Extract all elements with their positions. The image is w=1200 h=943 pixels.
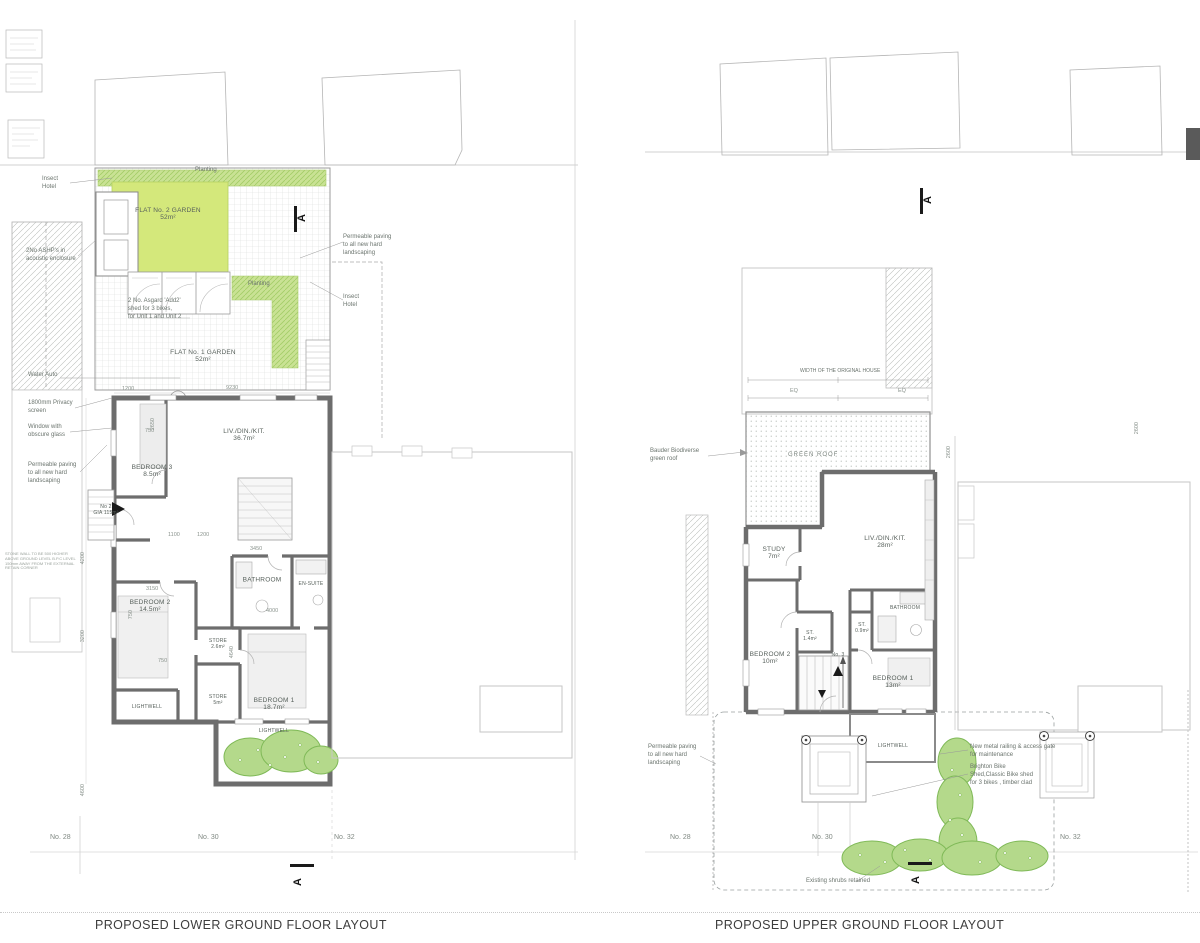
neighbour-32-left xyxy=(332,446,572,758)
bauder-note: Bauder Biodiverse green roof xyxy=(650,448,699,464)
neighbour-28-wall-right xyxy=(686,515,708,715)
permeable-right-note: Permeable paving to all new hard landsca… xyxy=(343,234,401,257)
lightwell-right-label: LIGHTWELL xyxy=(878,743,908,749)
liv-label-left: LIV./DIN./KIT. 36.7m² xyxy=(223,428,265,442)
privacy-note: 1800mm Privacy screen xyxy=(28,400,73,416)
section-letter-bottom-right: A xyxy=(910,876,922,884)
water-note: Water Auto xyxy=(28,372,57,380)
dim: 1100 xyxy=(168,532,180,538)
dim: 750 xyxy=(158,658,167,664)
st-hall-label: ST. 1.4m² xyxy=(803,630,817,642)
dim: 2600 xyxy=(1134,422,1140,434)
dim: 2600 xyxy=(946,446,952,458)
study-label: STUDY 7m² xyxy=(762,546,785,560)
bedroom1-label-right: BEDROOM 1 13m² xyxy=(873,675,914,689)
permeable-note-right: Permeable paving to all new hard landsca… xyxy=(648,744,696,767)
eq-right-label: EQ xyxy=(898,388,906,394)
bedroom2-label-left: BEDROOM 2 14.5m² xyxy=(130,599,171,613)
dim: 4640 xyxy=(229,646,235,658)
planting-top-label: Planting xyxy=(195,167,217,175)
store-large-label: STORE 5m² xyxy=(209,694,227,706)
ensuite-label: EN-SUITE xyxy=(299,581,324,587)
insect-left-note: Insect Hotel xyxy=(42,176,58,192)
section-letter-top-left: A xyxy=(296,214,308,222)
width-house-label: WIDTH OF THE ORIGINAL HOUSE xyxy=(800,368,880,375)
house-no-30-right: No. 30 xyxy=(812,834,833,841)
right-plan-title: PROPOSED UPPER GROUND FLOOR LAYOUT xyxy=(715,918,1004,932)
green-roof-label: GREEN ROOF xyxy=(788,452,838,460)
bedroom3-label: BEDROOM 3 8.5m² xyxy=(132,464,173,478)
lightwell-bottom-label: LIGHTWELL xyxy=(259,728,289,734)
house-no-28-right: No. 28 xyxy=(670,834,691,841)
stone-wall-note: STONE WALL TO BE 500 HIGHER ABOVE GROUND… xyxy=(5,552,85,571)
bathroom-label-left: BATHROOM xyxy=(243,577,282,584)
permeable-left-note: Permeable paving to all new hard landsca… xyxy=(28,462,76,485)
plan-linework xyxy=(0,0,1200,943)
drawing-canvas: Planting FLAT No. 2 GARDEN 52m² Permeabl… xyxy=(0,0,1200,943)
house-no-32-right: No. 32 xyxy=(1060,834,1081,841)
ashp-note: 2No ASHP's in acoustic enclosure xyxy=(26,248,76,264)
bedroom1-label-left: BEDROOM 1 18.7m² xyxy=(254,697,295,711)
garden-stair xyxy=(306,340,330,390)
dim: 4000 xyxy=(266,608,278,614)
planting-mid-label: Planting xyxy=(248,281,270,289)
flat1-garden-label: FLAT No. 1 GARDEN 52m² xyxy=(170,349,236,363)
dim: 9230 xyxy=(226,385,238,391)
section-letter-bottom-left: A xyxy=(292,878,304,886)
section-line-bottom-right xyxy=(908,862,932,865)
dark-block xyxy=(1186,128,1200,160)
st-small-label: ST. 0.9m² xyxy=(855,622,869,634)
bike-shed-note-right: Brighton Bike Shed,Classic Bike shed for… xyxy=(970,764,1060,787)
dim: 750 xyxy=(128,610,134,619)
liv-label-right: LIV./DIN./KIT. 28m² xyxy=(864,535,906,549)
eq-left-label: EQ xyxy=(790,388,798,394)
bedroom2-label-right: BEDROOM 2 10m² xyxy=(750,651,791,665)
railing-note: New metal railing & access gate for main… xyxy=(970,744,1065,760)
unit2-label: No 2 GIA 115m² xyxy=(93,504,118,516)
dim: 4600 xyxy=(80,784,86,796)
house-no-28-left: No. 28 xyxy=(50,834,71,841)
ashp-enclosure xyxy=(96,192,138,276)
insect-right-note: Insect Hotel xyxy=(343,294,359,310)
house-no-32-left: No. 32 xyxy=(334,834,355,841)
stair-core xyxy=(238,478,292,540)
separator-dotted-line xyxy=(0,912,1200,913)
dim: 2650 xyxy=(150,418,156,430)
right-building xyxy=(686,188,1190,882)
dim: 4200 xyxy=(80,552,86,564)
unit3-label: No. 3 xyxy=(832,652,845,658)
dim: 1200 xyxy=(122,386,134,392)
house-no-30-left: No. 30 xyxy=(198,834,219,841)
dim: 3450 xyxy=(250,546,262,552)
green-roof-area xyxy=(746,412,930,527)
left-plan-title: PROPOSED LOWER GROUND FLOOR LAYOUT xyxy=(95,918,387,932)
flat2-garden-label: FLAT No. 2 GARDEN 52m² xyxy=(135,207,201,221)
fixtures-right xyxy=(878,480,934,686)
section-letter-top-right: A xyxy=(922,196,934,204)
shrubs-note: Existing shrubs retained xyxy=(806,878,870,886)
dim: 3150 xyxy=(146,586,158,592)
dim: 1200 xyxy=(197,532,209,538)
bathroom-label-right: BATHROOM xyxy=(890,605,920,611)
existing-stair-hatch xyxy=(886,268,932,388)
store-small-label: STORE 2.6m² xyxy=(209,638,227,650)
dim: 3200 xyxy=(80,630,86,642)
obscure-glass-note: Window with obscure glass xyxy=(28,424,65,440)
bike-shed-note: 2 No. Asgard 'Add2' shed for 3 bikes, fo… xyxy=(128,298,181,321)
legend-boxes xyxy=(6,30,44,158)
lightwell-left-label: LIGHTWELL xyxy=(132,704,162,710)
section-line-bottom-left xyxy=(290,864,314,867)
